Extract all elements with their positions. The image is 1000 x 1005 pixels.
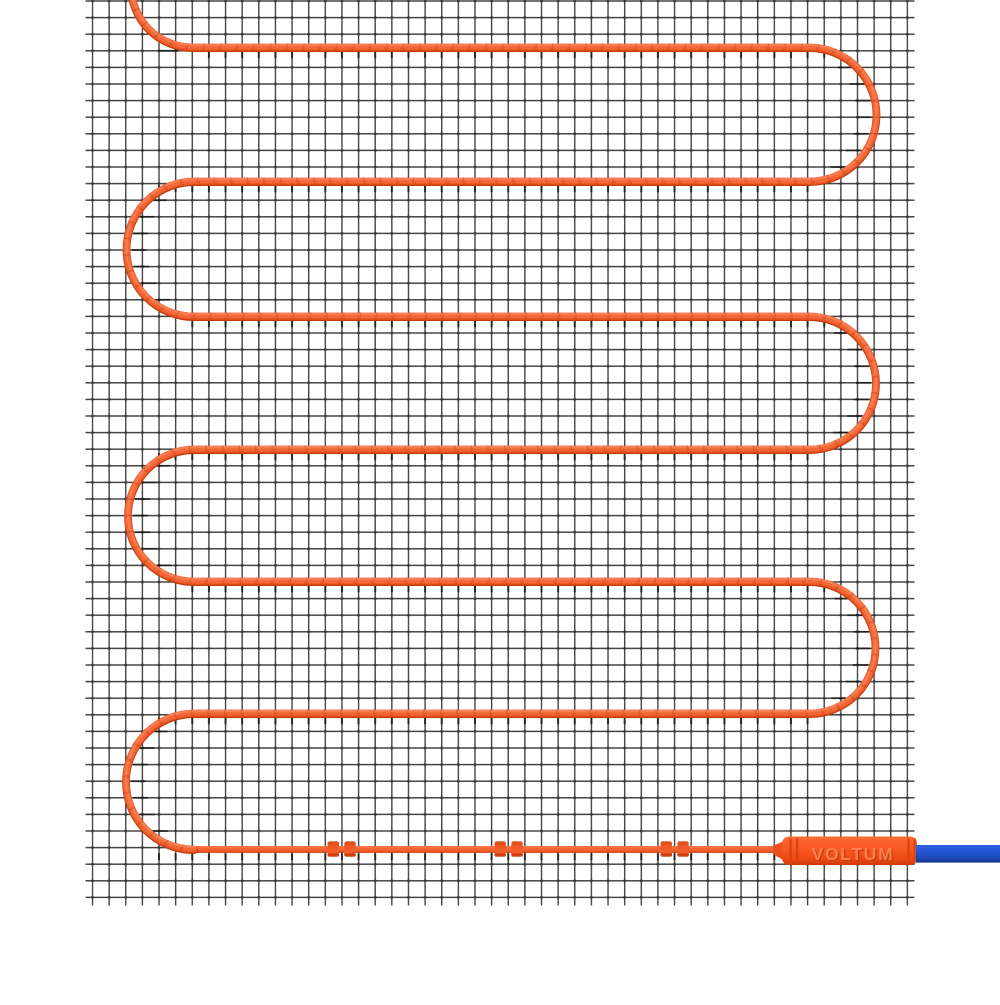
svg-text:VOLTUM: VOLTUM bbox=[812, 844, 895, 864]
